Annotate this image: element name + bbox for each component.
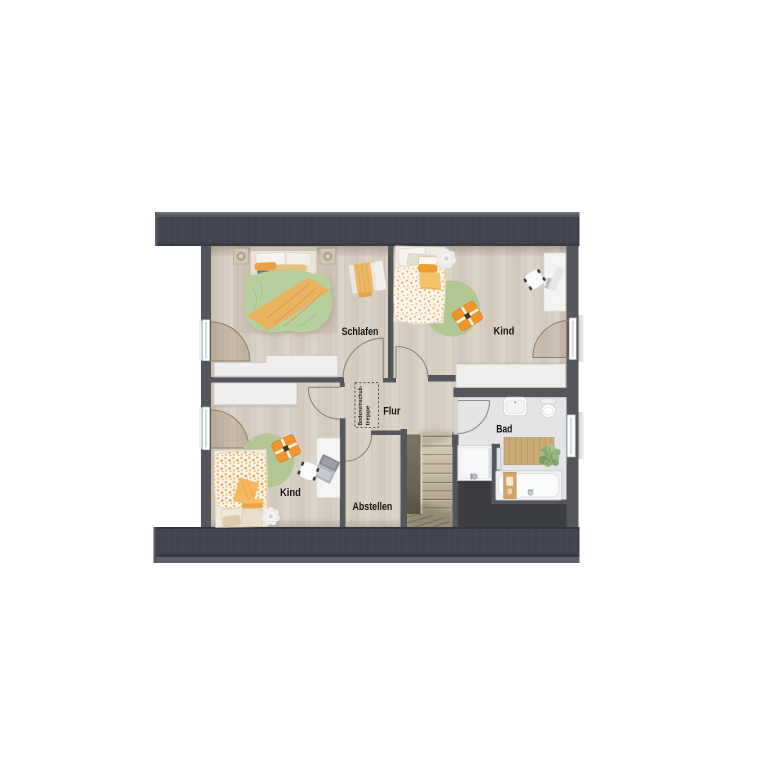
svg-text:Bodeneinschub-: Bodeneinschub- [358,385,364,425]
svg-text:Kind: Kind [280,487,301,499]
svg-text:treppe: treppe [366,405,372,426]
svg-text:Schlafen: Schlafen [342,326,379,338]
svg-text:Bad: Bad [496,424,512,436]
svg-text:Abstellen: Abstellen [353,501,393,513]
svg-text:Flur: Flur [383,405,401,417]
svg-text:Kind: Kind [494,325,515,337]
